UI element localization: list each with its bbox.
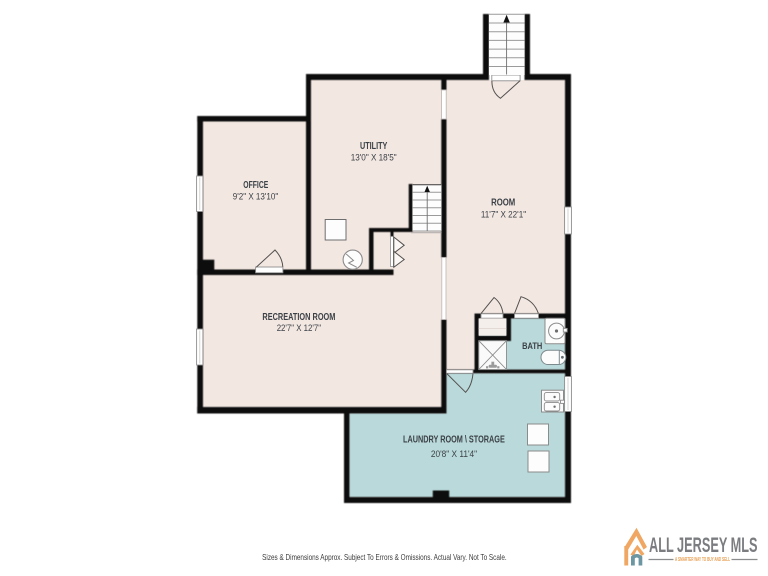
svg-text:ROOM: ROOM (491, 198, 515, 209)
svg-text:ALL JERSEY MLS: ALL JERSEY MLS (649, 534, 758, 557)
svg-text:BATH: BATH (522, 341, 542, 351)
svg-text:LAUNDRY ROOM \ STORAGE: LAUNDRY ROOM \ STORAGE (403, 434, 505, 445)
svg-text:20'8" X 11'4": 20'8" X 11'4" (431, 449, 477, 459)
svg-text:11'7" X 22'1": 11'7" X 22'1" (481, 209, 526, 219)
svg-text:RECREATION ROOM: RECREATION ROOM (262, 312, 335, 323)
svg-text:A SMARTER WAY TO BUY AND SELL: A SMARTER WAY TO BUY AND SELL (675, 557, 730, 563)
svg-text:13'0" X 18'5": 13'0" X 18'5" (351, 153, 397, 163)
svg-text:22'7" X 12'7": 22'7" X 12'7" (277, 323, 321, 333)
svg-text:OFFICE: OFFICE (243, 180, 268, 191)
svg-text:9'2" X 13'10": 9'2" X 13'10" (233, 192, 279, 202)
svg-text:UTILITY: UTILITY (360, 141, 388, 152)
svg-text:Sizes & Dimensions Approx. Sub: Sizes & Dimensions Approx. Subject To Er… (262, 553, 507, 562)
